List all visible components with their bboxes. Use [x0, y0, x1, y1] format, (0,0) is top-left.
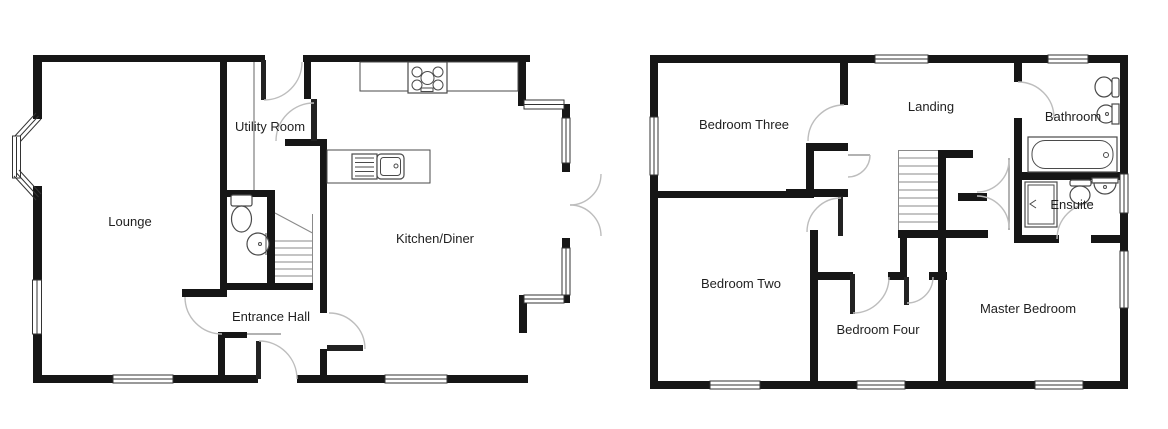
- toilet-icon: [1095, 77, 1119, 97]
- basin-icon: [1092, 178, 1118, 194]
- basin-icon: [247, 233, 269, 255]
- window: [1120, 251, 1128, 308]
- room-label-landing: Landing: [908, 99, 954, 114]
- room-label-bedroom-two: Bedroom Two: [701, 276, 781, 291]
- window: [1120, 174, 1128, 213]
- first-floor-plan: Bedroom Three Landing Bathroom Ensuite B…: [650, 55, 1128, 389]
- bay-window: [13, 108, 43, 200]
- floor-plan-page: Lounge Utility Room Kitchen/Diner Entran…: [0, 0, 1168, 429]
- door-bedroom-three: [808, 105, 844, 141]
- window: [524, 295, 564, 303]
- door-master-bedroom: [904, 277, 933, 305]
- room-label-utility: Utility Room: [235, 119, 305, 134]
- room-label-kitchen: Kitchen/Diner: [396, 231, 475, 246]
- ground-floor-plan: Lounge Utility Room Kitchen/Diner Entran…: [13, 55, 602, 383]
- window: [524, 100, 564, 109]
- toilet-icon: [231, 195, 252, 232]
- room-label-lounge: Lounge: [108, 214, 151, 229]
- room-label-master-bedroom: Master Bedroom: [980, 301, 1076, 316]
- window: [650, 117, 658, 175]
- room-label-bedroom-three: Bedroom Three: [699, 117, 789, 132]
- french-doors: [570, 174, 601, 236]
- door-bedroom-four: [850, 274, 889, 314]
- door-cupboard-small: [848, 155, 870, 177]
- window: [385, 375, 447, 383]
- window: [857, 381, 905, 389]
- door-kitchen: [327, 313, 365, 351]
- window: [710, 381, 760, 389]
- window: [1048, 55, 1088, 63]
- window: [1035, 381, 1083, 389]
- floor-plan-drawing: Lounge Utility Room Kitchen/Diner Entran…: [0, 0, 1168, 429]
- door-lounge: [185, 297, 222, 334]
- room-label-bedroom-four: Bedroom Four: [836, 322, 920, 337]
- window: [562, 118, 570, 163]
- bathtub-icon: [1028, 137, 1117, 172]
- door-utility-back: [261, 60, 302, 100]
- room-label-ensuite: Ensuite: [1050, 197, 1093, 212]
- window: [562, 248, 570, 295]
- window: [113, 375, 173, 383]
- room-label-hall: Entrance Hall: [232, 309, 310, 324]
- room-label-bathroom: Bathroom: [1045, 109, 1101, 124]
- hob-icon: [408, 62, 447, 93]
- staircase-first: [899, 150, 939, 230]
- staircase-ground: [275, 213, 313, 283]
- sink-unit-icon: [327, 150, 430, 183]
- window: [33, 280, 42, 334]
- window: [875, 55, 928, 63]
- door-front: [247, 334, 297, 379]
